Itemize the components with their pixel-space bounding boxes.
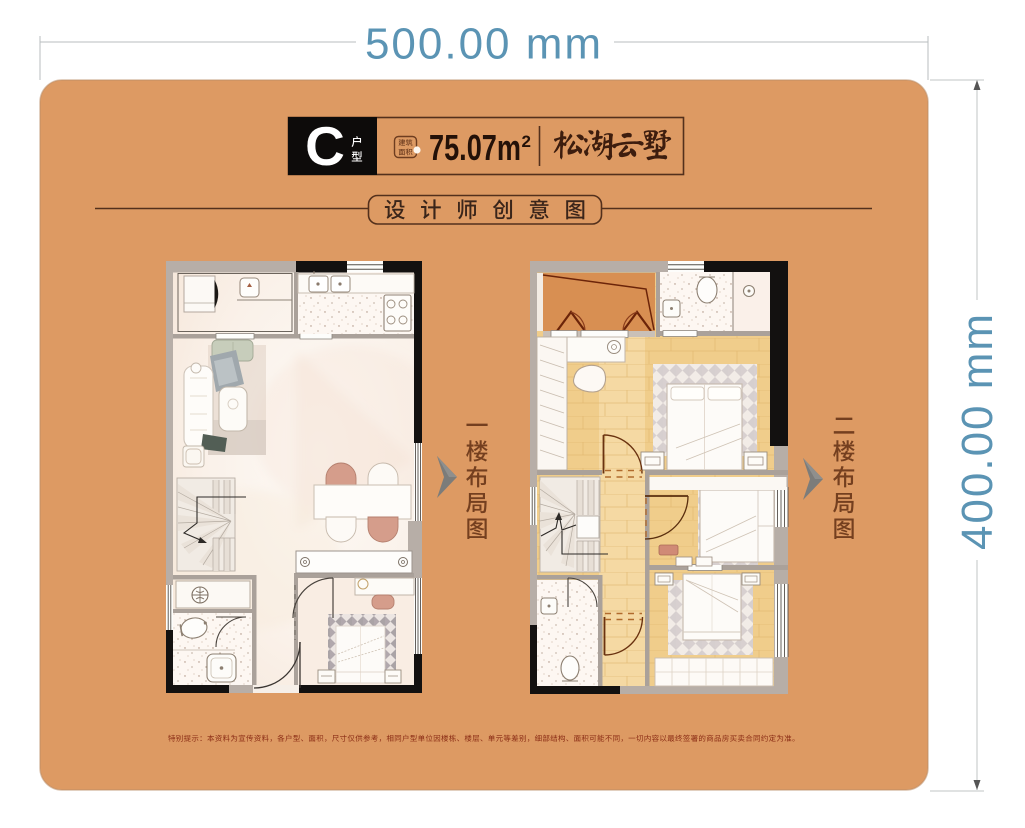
svg-text:2: 2 <box>522 132 531 151</box>
svg-text:500.00 mm: 500.00 mm <box>365 20 603 69</box>
svg-text:400.00 mm: 400.00 mm <box>953 312 1002 550</box>
svg-text:75.07m: 75.07m <box>429 127 521 168</box>
svg-text:C: C <box>305 115 345 177</box>
